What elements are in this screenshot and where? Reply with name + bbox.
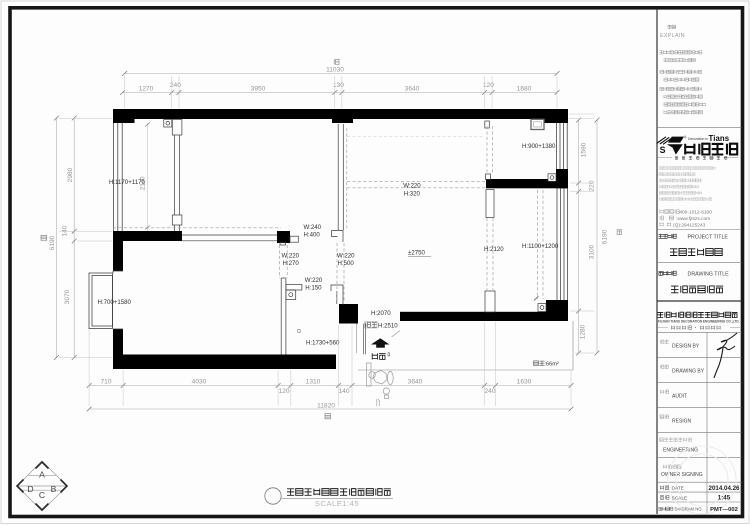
svg-text:(Q):294125243: (Q):294125243	[673, 222, 706, 228]
svg-text:H:400: H:400	[304, 232, 321, 239]
svg-text:240: 240	[484, 388, 495, 395]
svg-text:1630: 1630	[517, 378, 532, 385]
svg-text:H:900+1380: H:900+1380	[522, 143, 556, 150]
svg-text:Decoration in: Decoration in	[688, 137, 708, 141]
svg-text:3070: 3070	[64, 289, 71, 304]
svg-text:W:220: W:220	[282, 253, 300, 260]
svg-text:11820: 11820	[317, 402, 335, 409]
svg-text:2140: 2140	[140, 176, 147, 190]
svg-text:SCALE: SCALE	[672, 495, 688, 501]
svg-text:2980: 2980	[67, 167, 74, 182]
svg-text:PMT—002: PMT—002	[710, 507, 738, 513]
svg-text:220: 220	[589, 180, 596, 191]
svg-text:3950: 3950	[251, 85, 266, 92]
svg-text:PROJECT TITLE: PROJECT TITLE	[688, 234, 729, 240]
svg-text:H:270: H:270	[283, 260, 300, 267]
svg-text:OWNER SIGNING: OWNER SIGNING	[661, 472, 703, 478]
svg-text:DRAWING BY: DRAWING BY	[672, 369, 705, 375]
svg-text:Tians: Tians	[709, 134, 730, 143]
svg-text:W:220: W:220	[305, 277, 323, 284]
svg-text:1270: 1270	[139, 85, 154, 92]
svg-text:H:2070: H:2070	[371, 310, 391, 317]
svg-text:FUJIAN TIANS DECORATION ENGINE: FUJIAN TIANS DECORATION ENGINEERING CO.,…	[658, 320, 740, 324]
svg-text:DATE: DATE	[672, 486, 684, 492]
svg-text:H:500: H:500	[338, 260, 355, 267]
svg-text:140: 140	[338, 388, 349, 395]
svg-text:®: ®	[684, 136, 687, 140]
svg-text:3640: 3640	[408, 378, 423, 385]
svg-text:W:220: W:220	[337, 253, 355, 260]
svg-text:1:45: 1:45	[718, 495, 731, 502]
svg-text:3640: 3640	[405, 85, 420, 92]
svg-text:EXPLAIN: EXPLAIN	[660, 33, 685, 39]
svg-text:3100: 3100	[589, 244, 596, 259]
svg-text:DIAGRAM NO.: DIAGRAM NO.	[675, 507, 703, 512]
svg-text:S: S	[660, 145, 666, 155]
svg-text:140: 140	[62, 225, 69, 236]
svg-text:H:700+1580: H:700+1580	[98, 299, 132, 306]
svg-text:H:1100+1200: H:1100+1200	[522, 243, 559, 250]
svg-text:120: 120	[278, 388, 289, 395]
svg-text:SCALE1:45: SCALE1:45	[315, 499, 359, 508]
svg-text:6190: 6190	[49, 235, 56, 250]
svg-text::66m²: :66m²	[545, 362, 559, 368]
svg-text:11030: 11030	[326, 67, 344, 74]
svg-text:W:240: W:240	[304, 224, 322, 231]
svg-text:1280: 1280	[580, 324, 587, 339]
svg-text:±2750: ±2750	[408, 250, 426, 257]
svg-text:2014.04.26: 2014.04.26	[709, 485, 741, 492]
svg-text:DESIGN BY: DESIGN BY	[672, 344, 700, 350]
svg-text::400-1012-6100: :400-1012-6100	[678, 210, 712, 216]
svg-text:ENGINEERING: ENGINEERING	[663, 448, 698, 454]
svg-text:C: C	[39, 490, 45, 500]
svg-text:H:150: H:150	[305, 285, 322, 292]
svg-text:AUDIT: AUDIT	[672, 394, 687, 400]
svg-text:RESIGN: RESIGN	[672, 419, 692, 425]
svg-text::www.fjtszs.com: :www.fjtszs.com	[676, 216, 710, 222]
svg-text:A: A	[39, 470, 45, 480]
svg-text:W:220: W:220	[403, 182, 421, 189]
svg-text:4030: 4030	[192, 378, 207, 385]
svg-text:H:2120: H:2120	[484, 246, 504, 253]
svg-text:1680: 1680	[517, 85, 532, 92]
svg-text:H:1730+560: H:1730+560	[306, 340, 340, 347]
svg-text:D: D	[27, 484, 33, 494]
svg-text:6190: 6190	[602, 229, 609, 244]
svg-text:710: 710	[100, 378, 111, 385]
svg-text:H:2510: H:2510	[378, 323, 398, 330]
svg-text:H:320: H:320	[404, 190, 421, 197]
svg-text:1590: 1590	[581, 142, 588, 157]
svg-text:1310: 1310	[306, 378, 321, 385]
svg-text:DRAWING TITLE: DRAWING TITLE	[688, 271, 730, 277]
svg-text:B: B	[51, 484, 57, 494]
